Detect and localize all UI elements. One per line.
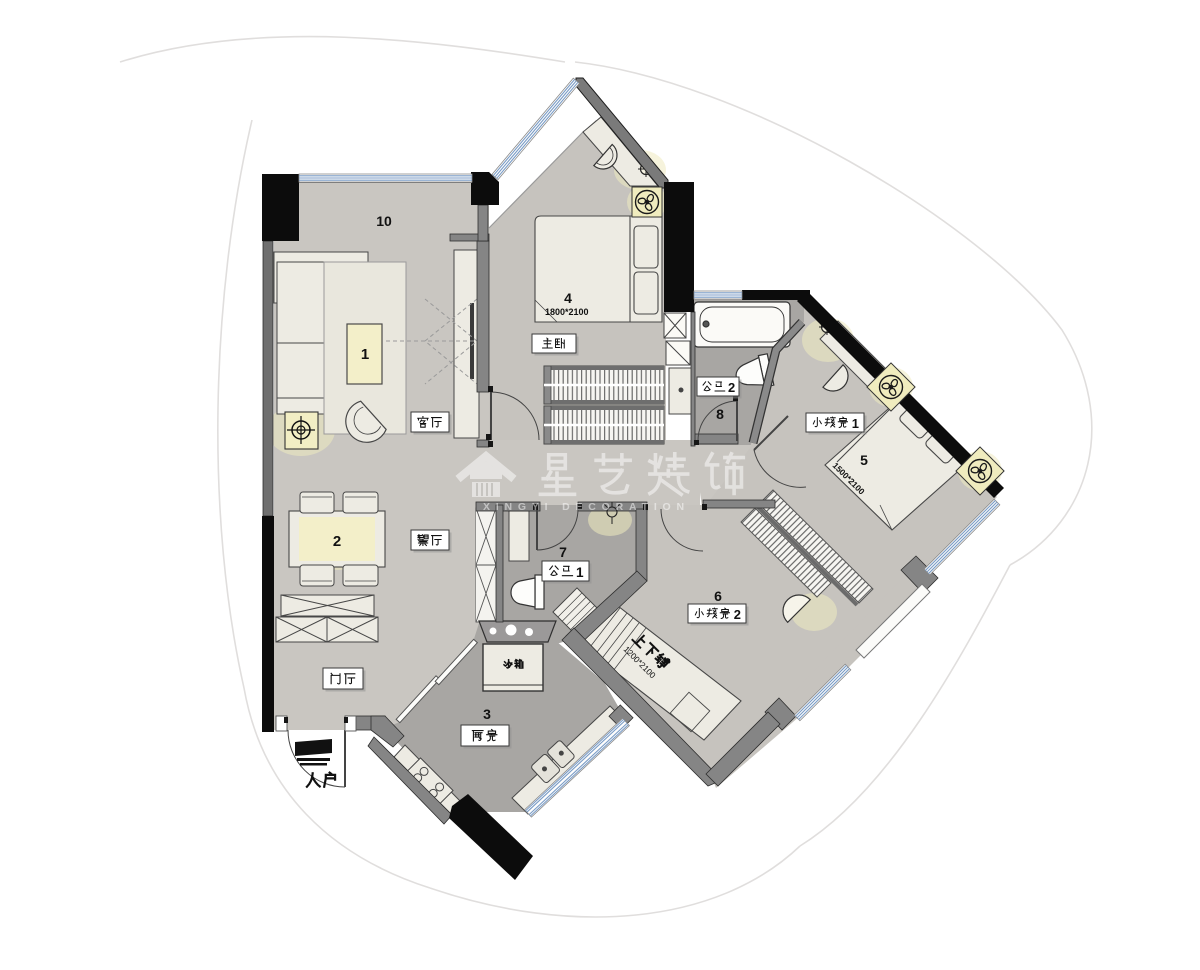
svg-text:3: 3 [483, 706, 491, 722]
svg-text:1: 1 [361, 346, 369, 363]
svg-text:1800*2100: 1800*2100 [545, 307, 589, 317]
svg-text:8: 8 [716, 406, 724, 422]
svg-text:2: 2 [734, 607, 741, 622]
svg-text:2: 2 [728, 380, 735, 395]
svg-text:XINGYI DECORATION: XINGYI DECORATION [483, 501, 690, 513]
svg-text:4: 4 [564, 290, 572, 306]
svg-text:1: 1 [852, 416, 859, 431]
svg-text:7: 7 [559, 544, 567, 560]
svg-text:6: 6 [714, 588, 722, 604]
svg-text:1: 1 [576, 565, 584, 580]
svg-text:10: 10 [376, 213, 392, 229]
svg-text:2: 2 [333, 533, 341, 550]
svg-text:5: 5 [860, 452, 868, 468]
